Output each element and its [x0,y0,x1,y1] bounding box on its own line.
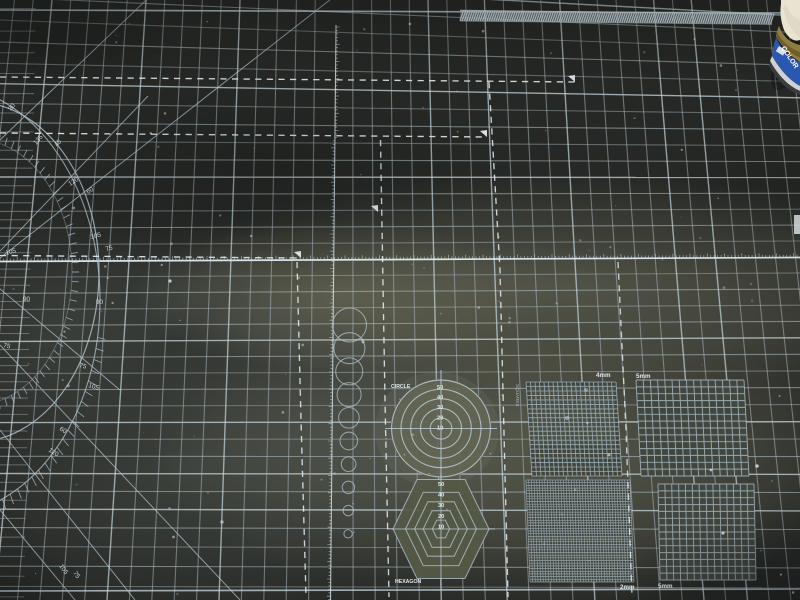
svg-text:30: 30 [437,405,443,411]
svg-text:HEXAGON: HEXAGON [395,579,421,585]
svg-text:SQUARES: SQUARES [515,384,520,406]
svg-text:10: 10 [437,425,443,431]
svg-text:CIRCLE: CIRCLE [391,384,411,390]
svg-text:40: 40 [437,395,443,401]
svg-text:40: 40 [438,493,444,499]
svg-text:90: 90 [23,296,31,303]
svg-text:20: 20 [438,514,444,520]
svg-text:50: 50 [437,385,443,391]
svg-text:10: 10 [438,524,444,530]
svg-text:50: 50 [438,482,444,488]
svg-text:5mm: 5mm [636,373,651,380]
svg-text:20: 20 [437,415,443,421]
svg-text:90: 90 [96,299,104,306]
svg-text:4mm: 4mm [596,372,611,379]
svg-text:30: 30 [438,503,444,509]
